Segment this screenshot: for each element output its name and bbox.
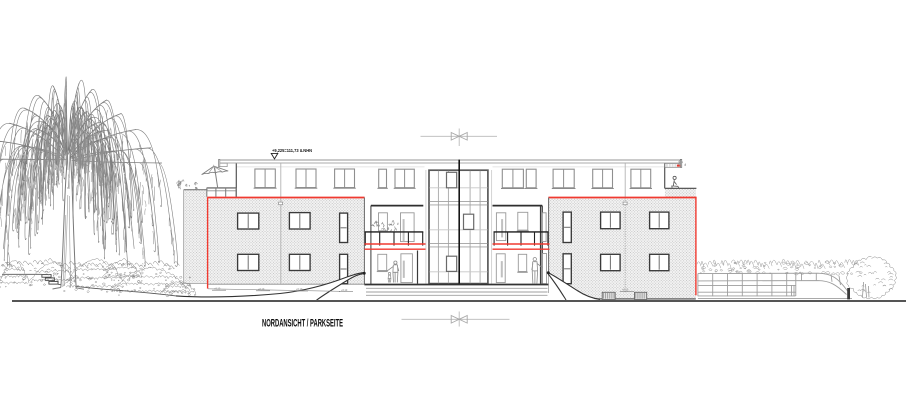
svg-text:+6,10: +6,10 — [258, 288, 265, 291]
svg-text:NORDANSICHT / PARKSEITE: NORDANSICHT / PARKSEITE — [262, 317, 343, 329]
svg-text:+6,10: +6,10 — [214, 287, 221, 290]
svg-text:+6,10: +6,10 — [622, 289, 629, 292]
svg-text:+6,10: +6,10 — [341, 289, 348, 292]
svg-text:+6,10: +6,10 — [296, 288, 303, 291]
svg-text:+9,225=111,73 ü.NHN: +9,225=111,73 ü.NHN — [272, 148, 313, 153]
